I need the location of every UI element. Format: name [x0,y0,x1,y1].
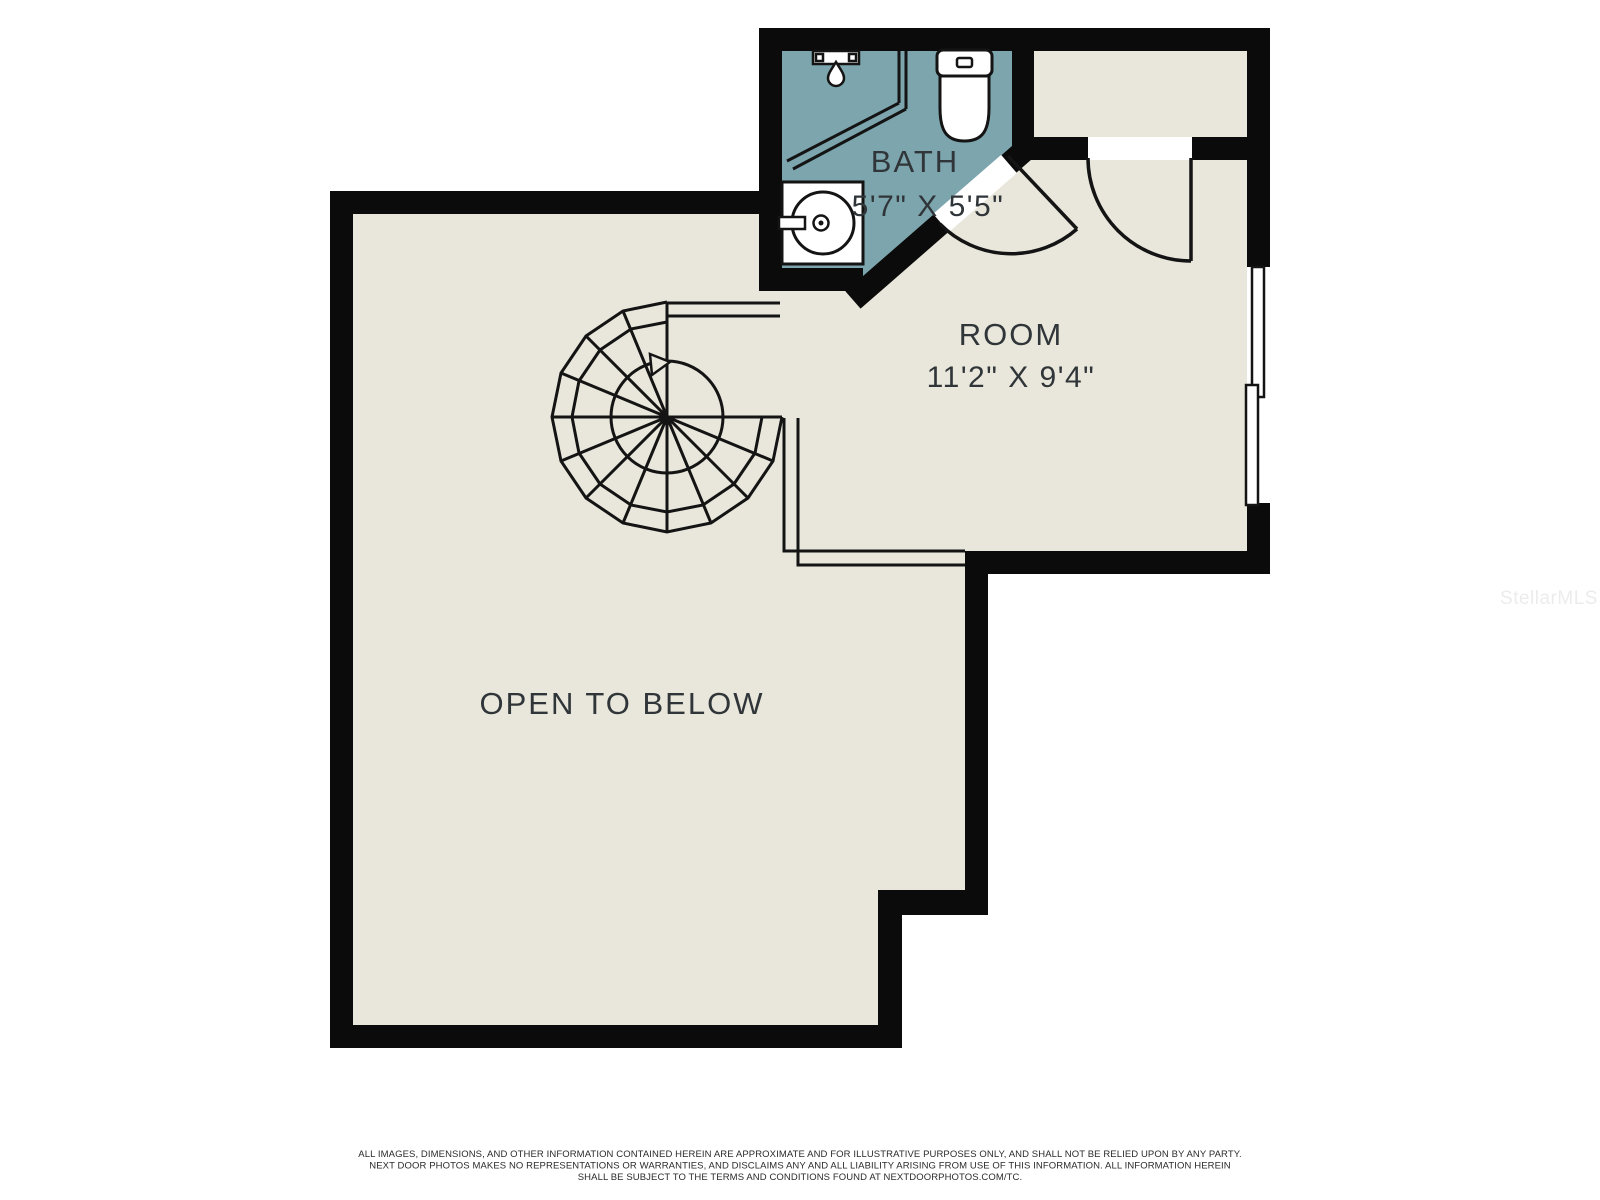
wall-segment [878,890,988,915]
toilet-bowl [940,76,989,141]
floor-plan-drawing: BATH 5'7" X 5'5" ROOM 11'2" X 9'4" OPEN … [0,0,1600,1200]
wall-segment [330,191,353,1048]
bath-dimensions: 5'7" X 5'5" [852,190,1005,223]
toilet-icon [937,50,992,141]
floor-plan: BATH 5'7" X 5'5" ROOM 11'2" X 9'4" OPEN … [0,0,1600,1200]
window-pane [1246,385,1258,505]
window-pane [1252,267,1264,397]
wall-segment [759,268,863,291]
wall-segment [759,28,782,291]
sink-icon [779,182,863,264]
shower-bar-end [816,54,823,61]
wall-segment [1247,28,1270,267]
window [1246,267,1270,505]
disclaimer-line: SHALL BE SUBJECT TO THE TERMS AND CONDIT… [578,1172,1023,1183]
toilet-flush-button [957,58,972,67]
wall-segment [1247,503,1270,574]
wall-segment [330,191,782,214]
sink-drain-dot [819,221,824,226]
wall-segment [965,551,988,890]
sink-faucet [779,217,805,229]
wall-segment [330,1025,902,1048]
disclaimer-text: ALL IMAGES, DIMENSIONS, AND OTHER INFORM… [358,1149,1241,1183]
room-dimensions: 11'2" X 9'4" [927,361,1096,394]
room-label: ROOM [959,317,1063,352]
wall-segment [878,915,902,1048]
shower-bar-end [849,54,856,61]
door-opening [1088,137,1192,160]
open-to-below-label: OPEN TO BELOW [480,686,765,721]
stellar-mls-watermark: StellarMLS [1500,588,1598,609]
disclaimer-line: NEXT DOOR PHOTOS MAKES NO REPRESENTATION… [369,1161,1231,1172]
disclaimer-line: ALL IMAGES, DIMENSIONS, AND OTHER INFORM… [358,1149,1241,1160]
wall-segment [965,551,1269,574]
bath-label: BATH [871,144,959,179]
